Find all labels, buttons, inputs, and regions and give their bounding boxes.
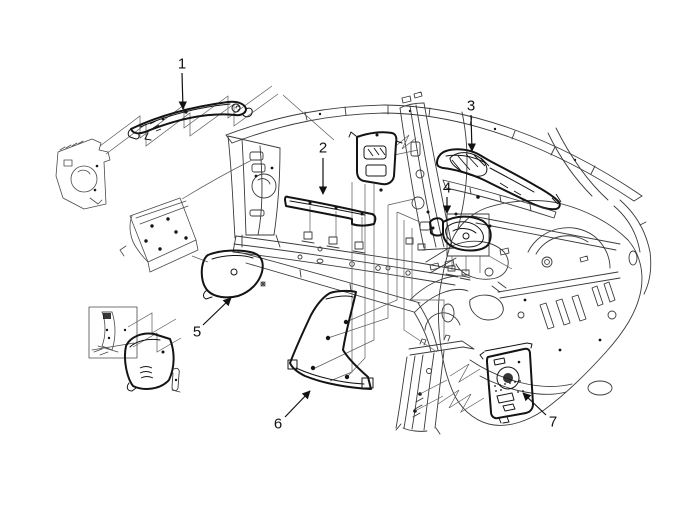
part-5-cowl-side-trim [202, 251, 263, 299]
callout-label-6: 6 [274, 417, 282, 432]
rocker-sill [233, 232, 460, 285]
rear-quarter-structure [614, 200, 651, 294]
callout-label-2: 2 [319, 141, 327, 156]
leader-lines [100, 86, 512, 412]
roof-rail [226, 105, 642, 201]
callout-label-5: 5 [193, 325, 201, 340]
door-aperture-lines [258, 112, 608, 235]
callout-label-7: 7 [549, 415, 557, 430]
center-pillar-trim-front-view [349, 132, 402, 192]
inset-cowl-inner-panel [120, 198, 198, 272]
part-3-rear-shelf-trim [437, 149, 561, 218]
part-6-center-pillar-lower-trim [261, 282, 373, 389]
diagram-canvas: 1 2 3 4 5 6 7 [0, 0, 700, 528]
inset-lower-anchor-view [89, 307, 181, 392]
callout-label-1: 1 [178, 57, 186, 72]
callout-label-3: 3 [467, 99, 475, 114]
front-pillar-structure [228, 136, 280, 247]
callout-arrows [182, 73, 546, 417]
part-4-rear-side-trim [430, 213, 492, 257]
perspective-floor-lines [238, 252, 438, 352]
part-7-center-pillar-upper-trim [480, 343, 533, 423]
inset-front-body-section [56, 139, 110, 209]
lower-pillar-structure-7 [396, 335, 474, 434]
trim-exploded-diagram [0, 0, 700, 528]
callout-label-4: 4 [443, 181, 451, 196]
